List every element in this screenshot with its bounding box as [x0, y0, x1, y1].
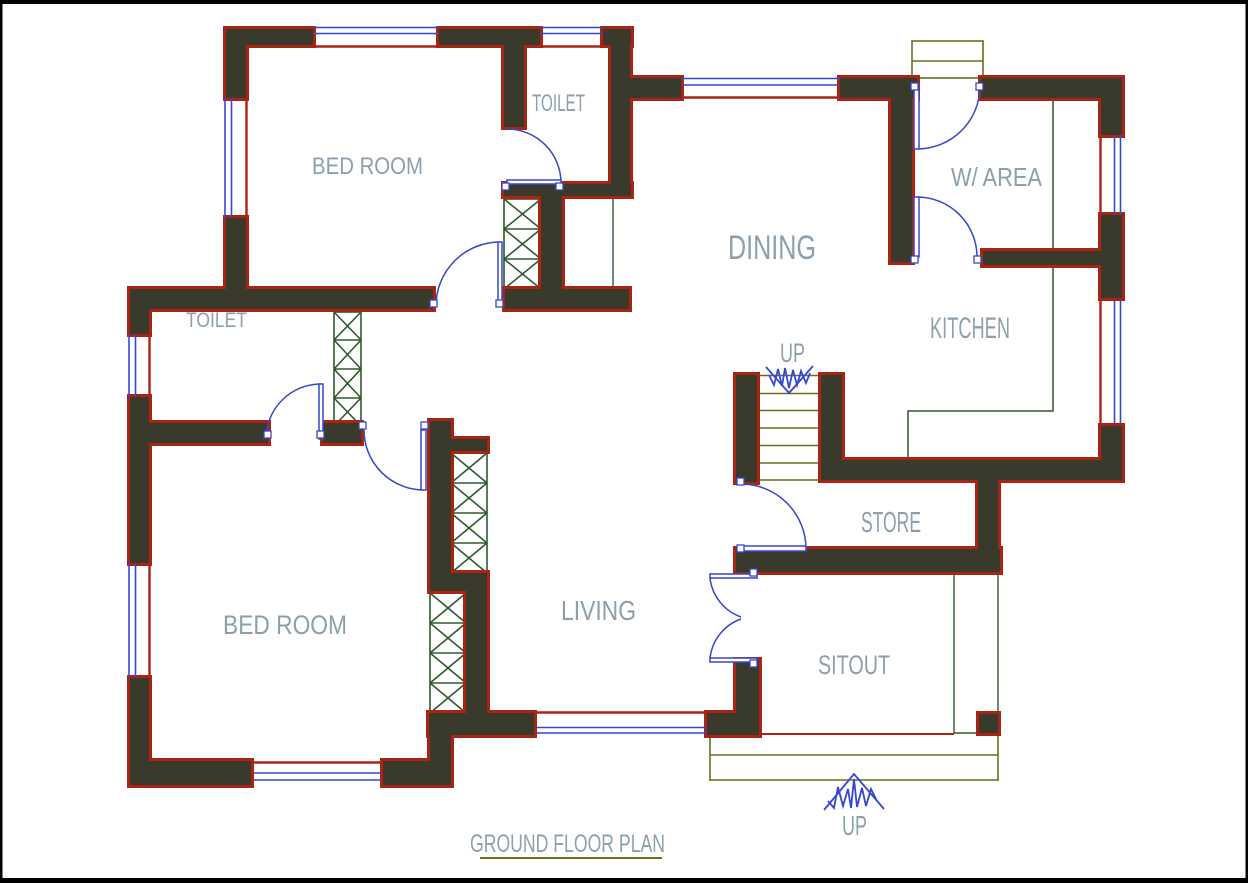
- svg-text:BED ROOM: BED ROOM: [312, 153, 423, 180]
- svg-text:DINING: DINING: [728, 229, 816, 267]
- svg-text:UP: UP: [842, 810, 867, 841]
- svg-text:UP: UP: [780, 338, 805, 368]
- svg-text:KITCHEN: KITCHEN: [930, 312, 1010, 345]
- svg-text:BED ROOM: BED ROOM: [223, 610, 347, 640]
- svg-text:STORE: STORE: [861, 507, 921, 539]
- svg-text:TOILET: TOILET: [186, 309, 247, 332]
- svg-text:LIVING: LIVING: [561, 595, 636, 626]
- svg-text:W/ AREA: W/ AREA: [951, 162, 1043, 192]
- svg-text:GROUND FLOOR PLAN: GROUND FLOOR PLAN: [470, 830, 665, 858]
- svg-text:TOILET: TOILET: [532, 90, 585, 117]
- svg-text:SITOUT: SITOUT: [818, 650, 890, 680]
